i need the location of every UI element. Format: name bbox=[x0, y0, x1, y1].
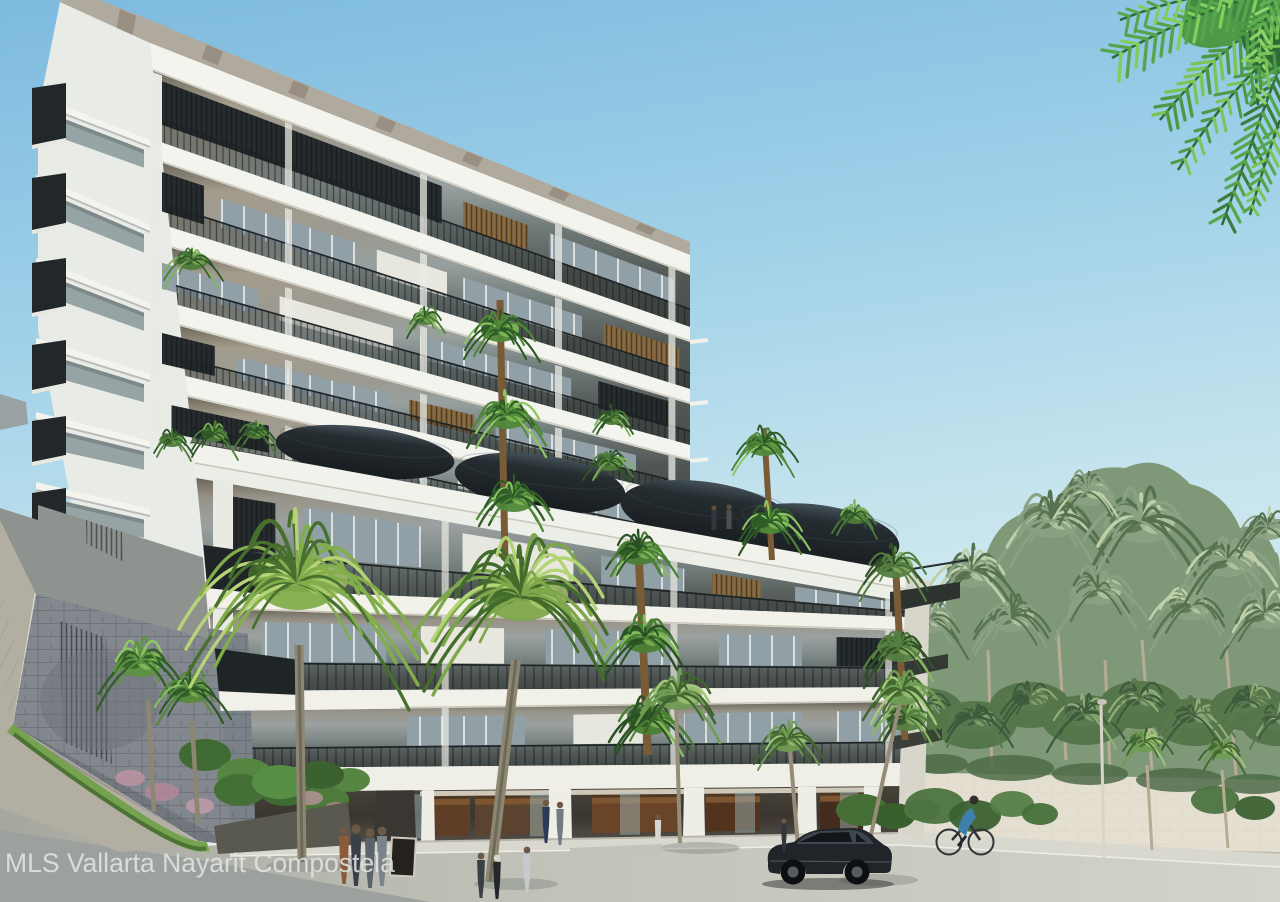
svg-text:MLS Vallarta Nayarit Compostel: MLS Vallarta Nayarit Compostela bbox=[5, 848, 395, 878]
